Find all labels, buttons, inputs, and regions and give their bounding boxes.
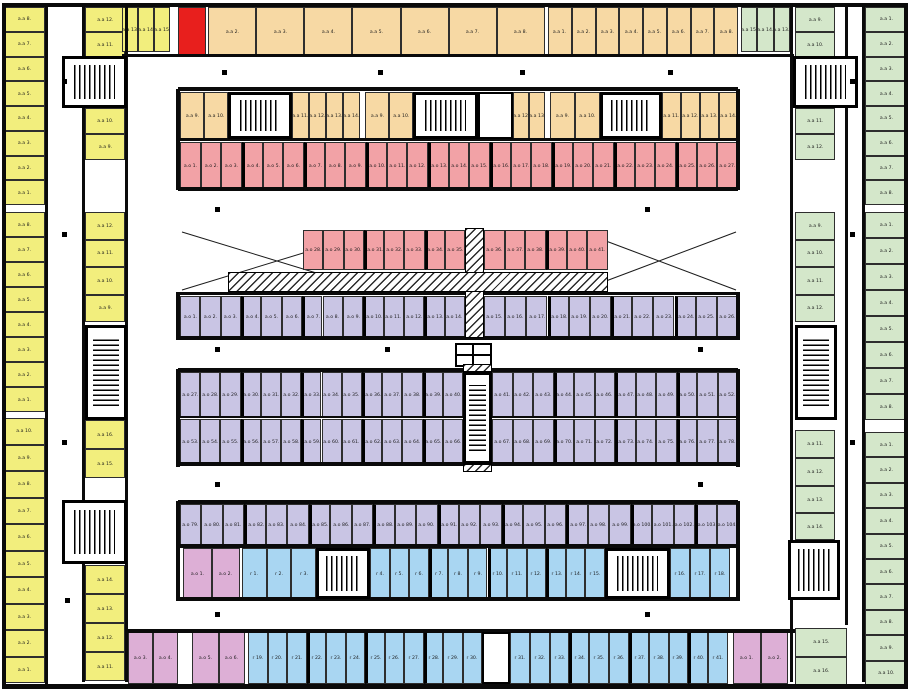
unit-label: a.o 94. (506, 522, 522, 527)
unit-label: r 13. (552, 571, 563, 576)
unit-label: a.a 8. (17, 17, 30, 22)
unit-label: a.o 8. (326, 314, 339, 319)
unit-label: a.o 25. (679, 163, 695, 168)
parking-unit: a.a 12. (309, 92, 326, 139)
parking-unit: a.a 6. (865, 342, 907, 368)
parking-unit: a.o 64. (402, 419, 422, 464)
unit-label: a.o 14. (451, 163, 467, 168)
unit-label: a.a 8. (879, 620, 892, 625)
parking-unit: a.o 3. (221, 142, 242, 189)
parking-unit: a.o 34. (322, 372, 342, 417)
unit-label: a.o 54. (202, 439, 218, 444)
unit-label: a.a 4. (879, 91, 892, 96)
parking-unit: a.a 1. (548, 7, 572, 56)
unit-label: a.a 12. (97, 17, 113, 22)
parking-unit: a.o 38. (525, 230, 546, 270)
unit-label: r 11. (511, 571, 522, 576)
parking-unit: a.o 39. (546, 230, 567, 270)
unit-label: a.a 3. (274, 29, 287, 34)
unit-label: a.o 24. (658, 163, 674, 168)
unit-label: a.o 16. (493, 163, 509, 168)
parking-unit: a.o 39. (423, 372, 443, 417)
parking-unit: a.a 3. (865, 483, 907, 508)
unit-label: a.a 11. (292, 113, 308, 118)
unit-label: a.a 16. (813, 668, 829, 673)
ramp-hatch (463, 364, 492, 372)
parking-unit: a.o 23. (653, 296, 674, 337)
unit-label: a.a 9. (808, 17, 821, 22)
unit-label: a.a 12. (807, 145, 823, 150)
parking-unit: a.a 6. (401, 7, 449, 56)
parking-unit: a.a 13. (326, 92, 343, 139)
stair-treads-icon (93, 339, 118, 407)
parking-unit: a.a 12. (795, 458, 835, 486)
parking-unit: a.a 6. (3, 262, 45, 287)
unit-label: a.a 3. (17, 141, 30, 146)
parking-unit: a.o 8. (325, 142, 346, 189)
column-marker (215, 612, 220, 617)
unit-label: a.o 95. (526, 522, 542, 527)
unit-label: a.a 11. (807, 442, 823, 447)
parking-unit: a.a 8. (3, 212, 45, 237)
unit-label: a.a 5. (370, 29, 383, 34)
stairwell (413, 92, 478, 139)
unit-label: a.a 4. (625, 29, 638, 34)
column-marker (850, 79, 855, 84)
unit-label: a.a 2. (17, 372, 30, 377)
unit-label: a.o 100. (633, 522, 652, 527)
parking-unit: a.o 40. (443, 372, 463, 417)
unit-label: r 6. (415, 571, 423, 576)
unit-label: a.a 15. (813, 640, 829, 645)
unit-label: a.o 80. (204, 522, 220, 527)
unit-label: a.o 33. (406, 248, 422, 253)
unit-label: a.a 15. (97, 461, 113, 466)
parking-unit: a.a 9. (3, 445, 45, 472)
unit-label: a.o 39. (549, 248, 565, 253)
unit-label: a.o 43. (535, 392, 551, 397)
parking-unit: a.a 2. (3, 362, 45, 387)
parking-unit: a.a 4. (3, 106, 45, 131)
unit-label: a.o 85. (312, 522, 328, 527)
stairwell (605, 548, 670, 599)
parking-unit: a.o 56. (241, 419, 261, 464)
parking-unit: a.o 93. (480, 504, 501, 545)
parking-unit: a.o 17. (511, 142, 532, 189)
parking-unit: a.o 75. (656, 419, 677, 464)
parking-unit: a.a 7. (449, 7, 497, 56)
unit-label: a.a 13. (701, 113, 717, 118)
unit-label: a.o 35. (344, 392, 360, 397)
parking-unit: a.o 69. (533, 419, 554, 464)
unit-label: a.o 72. (597, 439, 613, 444)
parking-unit: a.a 4. (865, 81, 907, 106)
parking-unit: a.a 5. (3, 81, 45, 106)
unit-label: a.a 9. (370, 113, 383, 118)
unit-label: a.o 102. (675, 522, 694, 527)
parking-unit: a.a 5. (643, 7, 667, 56)
unit-label: r 40. (694, 656, 705, 661)
parking-unit: a.a 7. (3, 32, 45, 57)
unit-label: r 8. (454, 571, 462, 576)
unit-label: a.a 5. (17, 561, 30, 566)
unit-label: a.o 93. (483, 522, 499, 527)
stair-treads-icon (805, 65, 846, 100)
unit-label: a.a 5. (17, 297, 30, 302)
parking-unit: a.o 1. (180, 142, 201, 189)
parking-unit: a.o 79. (180, 504, 201, 545)
parking-unit: a.o 36. (484, 230, 505, 270)
unit-label: a.a 10. (807, 251, 823, 256)
parking-unit: a.o 74. (636, 419, 657, 464)
stairwell (316, 548, 370, 599)
unit-label: a.a 10. (807, 42, 823, 47)
unit-label: a.o 50. (680, 392, 696, 397)
unit-label: a.o 40. (569, 248, 585, 253)
unit-label: r 3. (300, 571, 308, 576)
unit-label: a.o 26. (719, 314, 735, 319)
parking-unit: a.o 37. (505, 230, 526, 270)
parking-unit: r 5. (390, 548, 410, 599)
parking-unit: a.o 77. (697, 419, 718, 464)
unit-label: a.o 19. (555, 163, 571, 168)
parking-unit: a.o 6. (283, 142, 304, 189)
parking-unit: a.o 28. (303, 230, 323, 270)
unit-label: a.a 2. (577, 29, 590, 34)
unit-label: r 33. (554, 656, 565, 661)
column-marker (850, 232, 855, 237)
wall (45, 7, 48, 684)
unit-label: a.o 4. (247, 163, 260, 168)
parking-unit: a.o 32. (281, 372, 301, 417)
parking-unit: r 27. (404, 632, 424, 684)
unit-label: a.o 83. (268, 522, 284, 527)
unit-label: a.o 101. (653, 522, 672, 527)
unit-label: a.o 91. (441, 522, 457, 527)
unit-label: a.o 29. (325, 248, 341, 253)
unit-label: a.a 13. (807, 497, 823, 502)
unit-label: a.o 65. (426, 439, 442, 444)
unit-label: a.o 84. (290, 522, 306, 527)
parking-unit: r 12. (527, 548, 547, 599)
parking-unit: a.a 4. (619, 7, 643, 56)
unit-label: r 26. (389, 656, 400, 661)
unit-label: a.o 37. (507, 248, 523, 253)
parking-unit: a.a 11. (795, 430, 835, 458)
parking-unit: a.a 7. (3, 498, 45, 525)
parking-unit: a.o 3. (221, 296, 241, 337)
stairwell (795, 325, 837, 420)
column-marker (385, 347, 390, 352)
unit-label: a.o 77. (699, 439, 715, 444)
unit-label: a.a 8. (17, 222, 30, 227)
unit-label: r 21. (291, 656, 302, 661)
parking-unit: a.a 5. (352, 7, 400, 56)
parking-unit: a.o 35. (342, 372, 362, 417)
parking-unit: a.o 25. (696, 296, 717, 337)
parking-unit: a.o 57. (261, 419, 281, 464)
unit-label: a.a 5. (879, 327, 892, 332)
unit-label: a.a 9. (185, 113, 198, 118)
parking-unit: a.o 40. (567, 230, 588, 270)
parking-unit: a.o 2. (200, 296, 220, 337)
stairwell (788, 540, 840, 600)
unit-label: a.a 11. (97, 42, 113, 47)
parking-unit: a.o 80. (201, 504, 222, 545)
unit-label: a.o 53. (182, 439, 198, 444)
floor-plan: a.a 8.a.a 7.a.a 6.a.a 5.a.a 4.a.a 3.a.a … (0, 0, 911, 697)
parking-unit: a.a 3. (3, 337, 45, 362)
unit-label: a.a 11. (97, 251, 113, 256)
unit-label: a.a 9. (17, 455, 30, 460)
unit-label: r 9. (474, 571, 482, 576)
parking-unit: a.a 14. (795, 513, 835, 540)
unit-label: a.o 2. (768, 656, 781, 661)
parking-unit: r 16. (670, 548, 690, 599)
parking-unit: a.o 91. (438, 504, 459, 545)
parking-unit: r 33. (550, 632, 570, 684)
parking-unit: a.o 32. (384, 230, 404, 270)
unit-label: a.o 32. (283, 392, 299, 397)
parking-unit: a.a 4. (865, 290, 907, 316)
unit-label: a.o 89. (397, 522, 413, 527)
parking-unit: a.a 9. (85, 295, 125, 323)
unit-label: r 35. (594, 656, 605, 661)
unit-label: a.o 25. (698, 314, 714, 319)
parking-unit: a.o 20. (590, 296, 611, 337)
unit-label: a.a 10. (579, 113, 595, 118)
parking-unit: a.a 11. (85, 240, 125, 268)
unit-label: a.o 2. (204, 314, 217, 319)
unit-label: a.o 7. (307, 314, 320, 319)
unit-label: a.a 14. (138, 27, 154, 32)
parking-unit: a.o 62. (362, 419, 382, 464)
unit-label: a.o 88. (377, 522, 393, 527)
wall (862, 7, 865, 682)
parking-unit: a.a 2. (572, 7, 596, 56)
parking-unit: a.o 27. (180, 372, 200, 417)
parking-unit: a.o 85. (309, 504, 330, 545)
parking-unit: a.o 21. (593, 142, 614, 189)
parking-unit: a.o 4. (241, 296, 261, 337)
parking-unit: a.o 7. (304, 142, 325, 189)
unit-label: a.o 90. (419, 522, 435, 527)
wall (178, 292, 738, 295)
parking-unit: a.o 100. (631, 504, 652, 545)
parking-unit: a.o 24. (675, 296, 696, 337)
unit-label: a.a 9. (808, 223, 821, 228)
parking-unit: a.o 48. (636, 372, 657, 417)
parking-unit: a.a 3. (865, 264, 907, 290)
parking-unit: a.o 5. (192, 632, 219, 684)
unit-label: a.o 12. (406, 314, 422, 319)
unit-label: a.o 75. (658, 439, 674, 444)
parking-unit: a.o 103. (695, 504, 716, 545)
parking-unit: a.o 70. (554, 419, 575, 464)
parking-unit: a.o 1. (183, 548, 212, 599)
unit-label: r 32. (534, 656, 545, 661)
parking-unit: a.a 13. (529, 92, 545, 139)
unit-label: a.o 1. (184, 314, 197, 319)
parking-unit: a.o 104. (717, 504, 738, 545)
parking-unit: a.a 11. (85, 652, 125, 681)
parking-unit: r 15. (585, 548, 605, 599)
unit-label: r 18. (715, 571, 726, 576)
unit-label: r 25. (370, 656, 381, 661)
unit-label: a.a 4. (17, 322, 30, 327)
parking-unit: a.o 92. (459, 504, 480, 545)
parking-unit: a.o 10. (363, 296, 383, 337)
parking-unit: a.a 5. (865, 534, 907, 559)
unit-label: a.o 69. (535, 439, 551, 444)
parking-unit: a.a 16. (85, 420, 125, 449)
unit-label: r 22. (312, 656, 323, 661)
stair-treads-icon (240, 100, 281, 131)
parking-unit: a.a 10. (865, 661, 907, 686)
unit-label: a.o 19. (571, 314, 587, 319)
unit-label: a.o 60. (324, 439, 340, 444)
unit-label: a.o 47. (618, 392, 634, 397)
unit-label: r 34. (575, 656, 586, 661)
wall (904, 3, 908, 689)
column-marker (62, 79, 67, 84)
unit-label: a.o 36. (486, 248, 502, 253)
unit-label: a.a 7. (17, 508, 30, 513)
unit-label: a.a 2. (225, 29, 238, 34)
parking-unit: a.a 11. (85, 32, 125, 57)
unit-label: a.a 12. (97, 223, 113, 228)
parking-unit: a.o 10. (366, 142, 387, 189)
unit-label: a.a 5. (879, 544, 892, 549)
unit-label: a.o 62. (365, 439, 381, 444)
parking-unit: a.a 1. (3, 657, 45, 684)
unit-label: a.a 4. (879, 301, 892, 306)
parking-unit: r 17. (690, 548, 710, 599)
unit-label: r 4. (376, 571, 384, 576)
unit-label: r 19. (252, 656, 263, 661)
unit-label: a.a 5. (648, 29, 661, 34)
parking-unit: a.a 3. (3, 131, 45, 156)
unit-label: a.o 28. (202, 392, 218, 397)
unit-label: a.o 99. (612, 522, 628, 527)
unit-label: a.o 11. (389, 163, 405, 168)
wall (2, 684, 908, 689)
parking-unit: a.o 97. (566, 504, 587, 545)
parking-unit: r 26. (385, 632, 405, 684)
parking-unit: a.o 5. (261, 296, 281, 337)
wall (2, 3, 6, 689)
wall (178, 336, 738, 340)
parking-unit: a.a 10. (204, 92, 228, 139)
parking-unit: a.o 16. (490, 142, 511, 189)
parking-unit: r 8. (448, 548, 468, 599)
unit-label: a.o 2. (204, 163, 217, 168)
parking-unit: a.o 3. (128, 632, 153, 684)
parking-unit: r 9. (468, 548, 488, 599)
unit-label: a.o 20. (592, 314, 608, 319)
parking-unit: a.o 30. (241, 372, 261, 417)
parking-unit: a.a 2. (865, 32, 907, 57)
parking-unit: a.a 4. (865, 508, 907, 533)
parking-unit: a.a 2. (3, 156, 45, 181)
unit-label: a.a 8. (879, 190, 892, 195)
parking-unit: a.a 6. (865, 131, 907, 156)
parking-unit: a.o 52. (718, 372, 739, 417)
parking-unit: a.a 12. (85, 212, 125, 240)
unit-label: a.o 26. (699, 163, 715, 168)
unit-label: a.a 6. (879, 569, 892, 574)
parking-unit: r 36. (609, 632, 629, 684)
parking-unit: a.a 12. (795, 134, 835, 160)
parking-unit: a.o 66. (443, 419, 463, 464)
parking-unit: a.o 2. (761, 632, 789, 684)
unit-label: r 36. (614, 656, 625, 661)
unit-label: a.a 14. (97, 577, 113, 582)
parking-unit: a.o 31. (261, 372, 281, 417)
unit-label: a.a 9. (879, 646, 892, 651)
column-marker (378, 70, 383, 75)
parking-unit: a.o 35. (445, 230, 465, 270)
parking-unit: a.o 11. (387, 142, 408, 189)
parking-unit: a.o 2. (212, 548, 241, 599)
unit-label: a.o 74. (638, 439, 654, 444)
parking-unit: a.o 11. (384, 296, 404, 337)
parking-unit: a.o 29. (220, 372, 240, 417)
wall (178, 187, 738, 191)
parking-unit: a.o 16. (505, 296, 526, 337)
parking-unit: a.a 15. (741, 7, 757, 52)
parking-unit: a.o 4. (242, 142, 263, 189)
parking-unit: r 30. (463, 632, 483, 684)
unit-label: a.a 14. (807, 524, 823, 529)
unit-label: a.a 12. (682, 113, 698, 118)
parking-unit: a.o 23. (635, 142, 656, 189)
unit-label: a.o 35. (447, 248, 463, 253)
unit-label: a.o 76. (680, 439, 696, 444)
parking-unit: a.a 7. (865, 156, 907, 181)
unit-label: r 12. (531, 571, 542, 576)
column-marker (215, 347, 220, 352)
elevator-room (478, 92, 513, 139)
unit-label: a.o 56. (244, 439, 260, 444)
parking-unit: a.o 22. (632, 296, 653, 337)
unit-label: a.o 38. (528, 248, 544, 253)
parking-unit: a.o 18. (548, 296, 569, 337)
parking-unit: a.o 26. (697, 142, 718, 189)
unit-label: a.a 10. (16, 429, 32, 434)
unit-label: a.a 15. (741, 27, 757, 32)
unit-label: a.o 86. (333, 522, 349, 527)
unit-label: a.o 34. (428, 248, 444, 253)
parking-unit: a.o 44. (554, 372, 575, 417)
wall (178, 500, 738, 504)
parking-unit: a.o 24. (655, 142, 676, 189)
unit-label: r 15. (590, 571, 601, 576)
unit-label: a.a 7. (879, 166, 892, 171)
unit-label: a.o 23. (656, 314, 672, 319)
parking-unit: a.o 45. (574, 372, 595, 417)
unit-label: a.o 11. (386, 314, 402, 319)
unit-label: a.o 58. (283, 439, 299, 444)
parking-unit: a.a 2. (208, 7, 256, 56)
parking-unit: a.a 1. (865, 212, 907, 238)
wall (178, 368, 738, 372)
unit-label: a.o 1. (191, 571, 204, 576)
parking-unit: a.a 10. (389, 92, 413, 139)
unit-label: a.o 63. (384, 439, 400, 444)
unit-label: a.a 6. (879, 353, 892, 358)
unit-label: a.o 17. (529, 314, 545, 319)
